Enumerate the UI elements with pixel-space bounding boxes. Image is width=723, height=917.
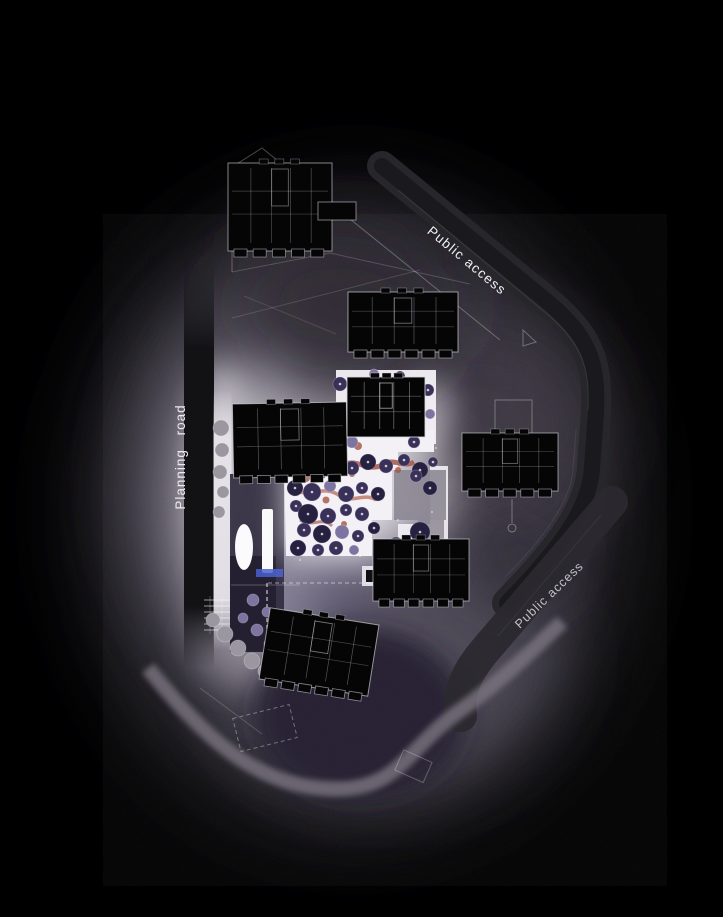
tree <box>425 409 435 419</box>
building-upper-mid <box>348 288 458 358</box>
tree <box>349 545 359 555</box>
tree <box>238 613 248 623</box>
info-chip <box>256 569 283 577</box>
building-north-annex <box>318 202 356 220</box>
site-plan-stage: Public access Planning road Public acces… <box>0 0 723 917</box>
tree <box>217 626 233 642</box>
tree <box>247 594 259 606</box>
tree <box>206 613 220 627</box>
tree <box>371 487 385 501</box>
tree <box>346 436 358 448</box>
tree <box>297 523 311 537</box>
tree <box>356 482 368 494</box>
water-feature-oval <box>235 524 253 570</box>
tree <box>217 486 229 498</box>
tree <box>333 377 347 391</box>
tree <box>360 454 376 470</box>
tree <box>338 486 354 502</box>
tree <box>215 443 229 457</box>
building-west <box>232 398 347 484</box>
building-center-small <box>347 373 425 437</box>
tree <box>340 504 352 516</box>
building-north <box>228 159 332 257</box>
tree <box>251 624 263 636</box>
tree <box>335 525 349 539</box>
tree <box>213 465 227 479</box>
tree <box>355 507 369 521</box>
site-plan-canvas: Public access Planning road Public acces… <box>0 0 723 917</box>
tree <box>352 530 364 542</box>
tree <box>313 525 331 543</box>
tree <box>379 459 393 473</box>
tree <box>428 457 438 467</box>
tree <box>298 504 318 524</box>
tree <box>398 454 410 466</box>
tree <box>423 481 437 495</box>
tree <box>368 522 380 534</box>
tree <box>230 640 246 656</box>
tree <box>408 436 420 448</box>
tree <box>213 420 229 436</box>
tree <box>244 653 260 669</box>
label-planning-road: Planning road <box>173 404 188 509</box>
tree <box>312 544 324 556</box>
water-feature-bar <box>262 509 273 573</box>
tree <box>320 508 336 524</box>
building-south-mid <box>373 535 469 607</box>
tree <box>213 506 225 518</box>
tree <box>303 483 321 501</box>
tree <box>290 540 306 556</box>
tree <box>410 470 422 482</box>
tree <box>329 541 343 555</box>
